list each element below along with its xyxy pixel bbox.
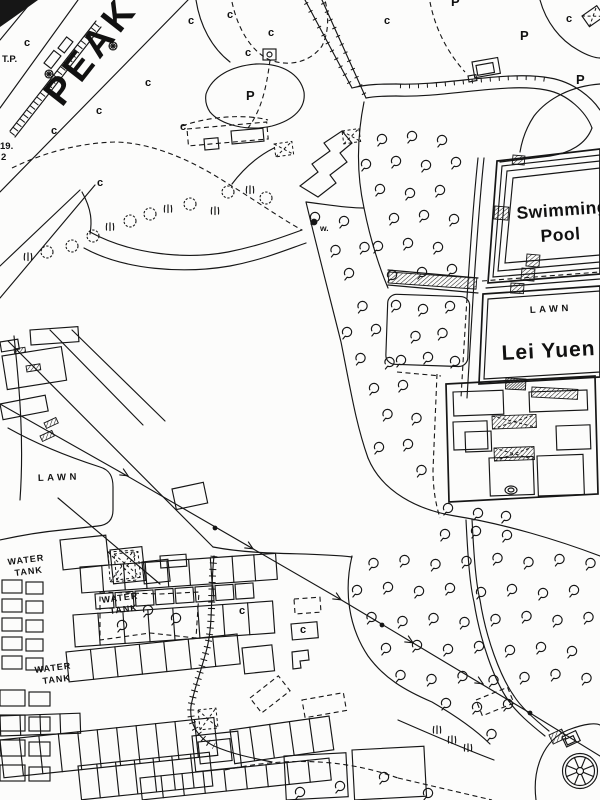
land-code-c: c (51, 125, 57, 137)
telephone-post-label: T.P. (2, 54, 17, 65)
lei-yuen-lawn-label: LAWN (530, 303, 572, 316)
land-code-c: c (96, 105, 102, 117)
water-tank-label-2-line2: TANK (109, 603, 138, 616)
lei-yuen-name-label: Lei Yuen (501, 337, 596, 365)
land-code-p: P (520, 28, 529, 43)
land-code-c: c (227, 9, 233, 21)
land-code-p: P (576, 72, 585, 87)
land-code-c: c (24, 37, 30, 49)
well-label: w. (319, 223, 329, 233)
lot-number-lower: 2 (1, 152, 6, 163)
land-code-c: c (239, 605, 245, 617)
tree-symbols (117, 131, 595, 800)
land-code-c: c (268, 27, 274, 39)
land-code-c: c (180, 121, 186, 133)
map-labels: PEAK T.P. 19. 2 Swimming Pool LAWN Lei Y… (0, 0, 600, 686)
land-code-c: c (384, 15, 390, 27)
bandstand-icon (563, 754, 598, 789)
land-code-c: c (300, 624, 306, 636)
swimming-pool-label-line2: Pool (540, 223, 581, 246)
land-code-c: c (145, 77, 151, 89)
lot-number-upper: 19. (0, 141, 13, 152)
map-canvas: PEAK T.P. 19. 2 Swimming Pool LAWN Lei Y… (0, 0, 600, 800)
swimming-pool-label-line1: Swimming (516, 197, 600, 223)
land-code-c: c (188, 15, 194, 27)
land-code-p: P (451, 0, 460, 9)
water-tank-label-3-line2: TANK (42, 673, 71, 686)
survey-map: PEAK T.P. 19. 2 Swimming Pool LAWN Lei Y… (0, 0, 600, 800)
land-code-c: c (566, 13, 572, 25)
land-code-p: P (246, 88, 255, 103)
land-code-c: c (97, 177, 103, 189)
land-code-c: c (245, 47, 251, 59)
map-linework (0, 0, 600, 800)
west-lawn-label: LAWN (38, 472, 80, 484)
water-tank-label-1-line2: TANK (14, 565, 43, 578)
road-name-label: PEAK (36, 0, 146, 114)
